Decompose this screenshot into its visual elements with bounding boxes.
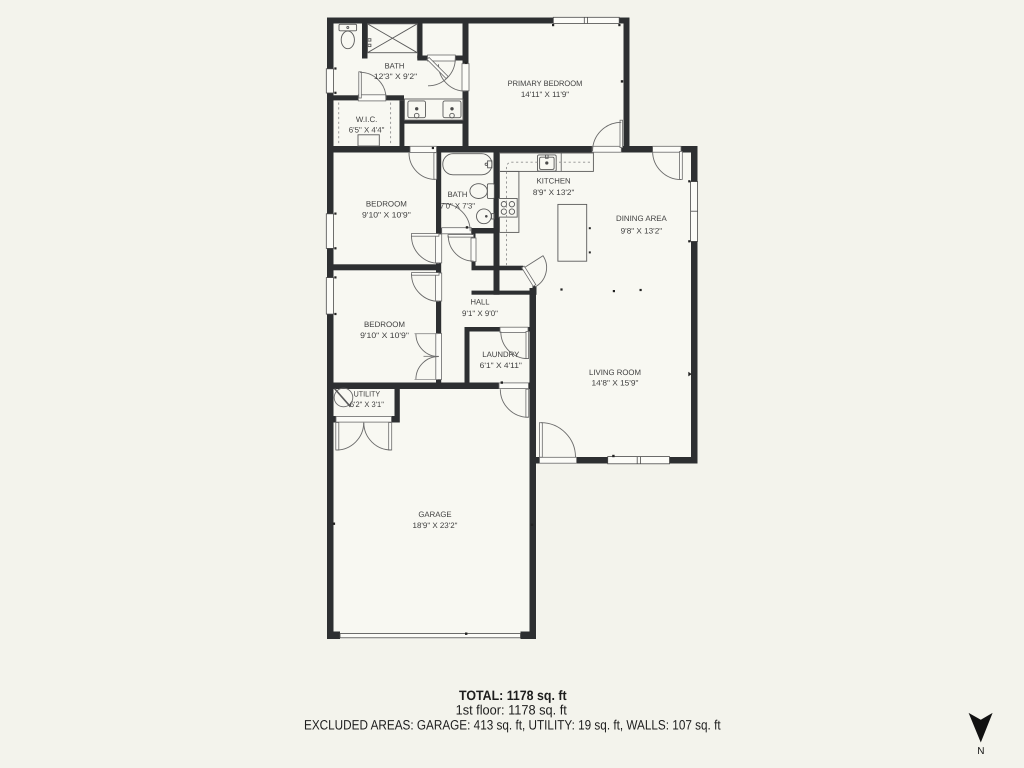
svg-text:DINING AREA: DINING AREA — [616, 214, 667, 223]
svg-text:9'10" X 10'9": 9'10" X 10'9" — [360, 331, 409, 340]
svg-text:KITCHEN: KITCHEN — [537, 176, 571, 185]
svg-text:W.I.C.: W.I.C. — [356, 115, 378, 124]
svg-text:TOTAL: 1178 sq. ft: TOTAL: 1178 sq. ft — [459, 688, 567, 703]
svg-text:GARAGE: GARAGE — [418, 510, 451, 519]
svg-text:6'5" X 4'4": 6'5" X 4'4" — [349, 126, 385, 135]
svg-text:BATH: BATH — [448, 190, 468, 199]
svg-text:LIVING ROOM: LIVING ROOM — [589, 368, 641, 377]
svg-text:9'8" X 13'2": 9'8" X 13'2" — [621, 226, 663, 235]
svg-text:UTILITY: UTILITY — [354, 390, 381, 399]
svg-text:14'8" X 15'9": 14'8" X 15'9" — [592, 378, 639, 387]
svg-text:LAUNDRY: LAUNDRY — [482, 350, 520, 359]
svg-text:HALL: HALL — [471, 298, 491, 307]
svg-text:18'9" X 23'2": 18'9" X 23'2" — [413, 521, 458, 530]
svg-text:14'11" X 11'9": 14'11" X 11'9" — [521, 90, 569, 99]
svg-text:BATH: BATH — [385, 62, 405, 71]
svg-text:BEDROOM: BEDROOM — [366, 199, 407, 208]
svg-text:N: N — [977, 746, 984, 757]
svg-text:6'1" X 4'11": 6'1" X 4'11" — [480, 361, 522, 370]
svg-text:EXCLUDED AREAS: GARAGE: 413 sq: EXCLUDED AREAS: GARAGE: 413 sq. ft, UTIL… — [304, 717, 721, 732]
svg-text:6'2" X 3'1": 6'2" X 3'1" — [350, 400, 384, 409]
svg-text:9'1" X 9'0": 9'1" X 9'0" — [462, 309, 498, 318]
svg-text:12'3" X 9'2": 12'3" X 9'2" — [374, 72, 417, 81]
svg-text:PRIMARY BEDROOM: PRIMARY BEDROOM — [508, 79, 583, 88]
svg-text:BEDROOM: BEDROOM — [364, 320, 405, 329]
svg-text:7'0" X 7'3": 7'0" X 7'3" — [440, 202, 475, 211]
svg-text:8'9" X 13'2": 8'9" X 13'2" — [533, 188, 575, 197]
svg-text:1st floor: 1178 sq. ft: 1st floor: 1178 sq. ft — [456, 703, 567, 718]
svg-text:9'10" X 10'9": 9'10" X 10'9" — [362, 210, 411, 219]
